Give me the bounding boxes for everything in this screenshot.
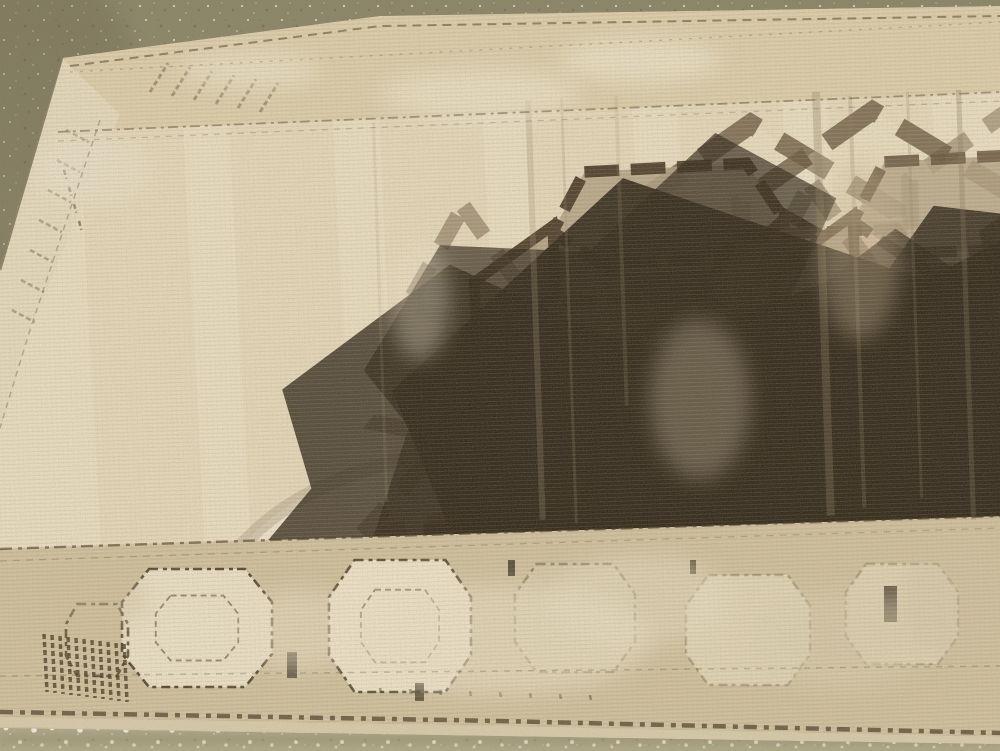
rug-photograph: [0, 0, 1000, 751]
photo-grain-overlay: [0, 0, 1000, 751]
rug-photo-canvas: [0, 0, 1000, 751]
